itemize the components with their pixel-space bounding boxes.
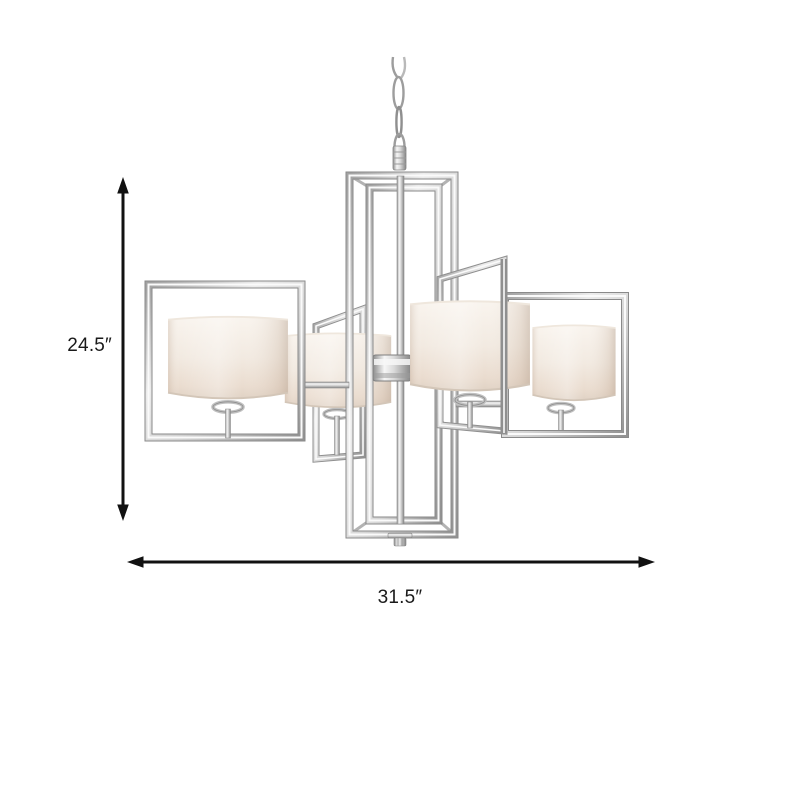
width-dimension-label: 31.5″: [332, 587, 468, 609]
chain-connector: [393, 146, 406, 170]
bottom-finial: [388, 533, 412, 546]
right-candle-stem: [548, 403, 574, 434]
front-right-drum-shade: [410, 301, 530, 390]
right-drum-shade: [532, 325, 615, 400]
width-dimension-arrow: [127, 556, 655, 568]
central-stem-rod: [397, 176, 404, 524]
product-dimension-figure: 24.5″ 31.5″: [0, 0, 800, 800]
chandelier-dimension-illustration: [0, 0, 800, 800]
center-collar: [373, 355, 411, 381]
height-dimension-label: 24.5″: [38, 335, 112, 357]
hanging-chain: [393, 57, 405, 160]
left-drum-shade: [168, 317, 288, 399]
height-dimension-arrow: [117, 177, 129, 521]
front-right-candle-stem: [455, 395, 485, 428]
left-arm-bar: [303, 382, 349, 388]
left-candle-stem: [213, 402, 243, 438]
